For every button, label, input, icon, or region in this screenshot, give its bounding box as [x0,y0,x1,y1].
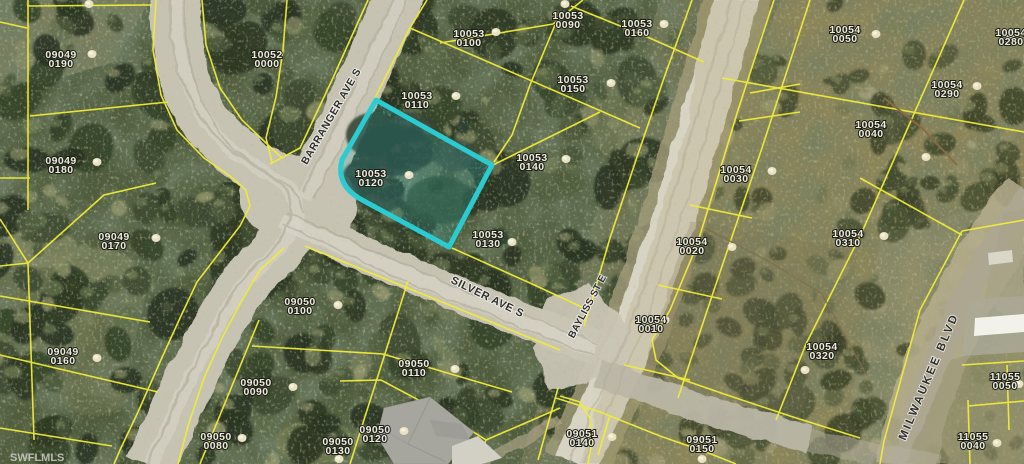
svg-text:100520000: 100520000 [251,49,282,70]
svg-text:100540320: 100540320 [806,341,837,362]
svg-text:100530100: 100530100 [453,28,484,49]
svg-text:110550050: 110550050 [990,371,1021,392]
svg-text:100540040: 100540040 [855,119,886,140]
svg-text:110550040: 110550040 [958,431,989,452]
svg-text:100540030: 100540030 [720,164,751,185]
svg-text:100530140: 100530140 [516,152,547,173]
svg-text:100540050: 100540050 [829,24,860,45]
svg-text:090490160: 090490160 [47,346,78,367]
svg-text:100530150: 100530150 [557,74,588,95]
svg-text:100530090: 100530090 [552,10,583,31]
svg-text:090500120: 090500120 [359,424,390,445]
svg-text:090500130: 090500130 [322,436,353,457]
svg-text:090510150: 090510150 [686,434,717,455]
svg-text:SWFLMLS: SWFLMLS [10,452,64,464]
svg-text:090490170: 090490170 [98,231,129,252]
svg-text:100530110: 100530110 [401,90,432,111]
svg-text:100540280: 100540280 [995,27,1024,48]
svg-text:090500100: 090500100 [284,296,315,317]
svg-text:090500090: 090500090 [240,377,271,398]
svg-text:100530130: 100530130 [472,229,503,250]
svg-text:090500110: 090500110 [398,358,429,379]
svg-text:090490190: 090490190 [45,49,76,70]
svg-text:100540020: 100540020 [676,236,707,257]
svg-text:100540010: 100540010 [635,314,666,335]
svg-text:090500080: 090500080 [200,431,231,452]
svg-text:090510140: 090510140 [566,428,597,449]
svg-text:090490180: 090490180 [45,155,76,176]
svg-text:100540310: 100540310 [832,228,863,249]
svg-text:100530120: 100530120 [355,168,386,189]
svg-text:100530160: 100530160 [621,18,652,39]
svg-text:100540290: 100540290 [931,79,962,100]
